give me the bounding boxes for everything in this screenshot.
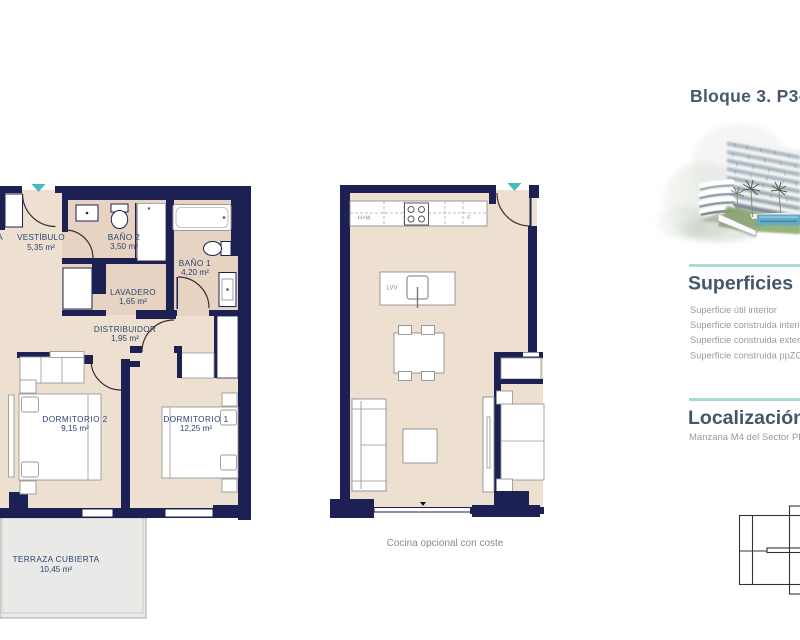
svg-text:F: F (467, 216, 471, 222)
svg-text:VESTÍBULO: VESTÍBULO (17, 232, 65, 242)
svg-text:Manzana M4 del Sector PP: Manzana M4 del Sector PP (689, 432, 800, 443)
svg-text:9,15 m²: 9,15 m² (61, 424, 89, 433)
svg-text:Superficie construida exterior: Superficie construida exterior (690, 335, 800, 345)
svg-text:Localización: Localización (688, 407, 800, 429)
svg-text:TERRAZA CUBIERTA: TERRAZA CUBIERTA (12, 555, 99, 564)
svg-text:Superficie construida interior: Superficie construida interior (690, 320, 800, 330)
svg-text:Superficie construida ppZCC: Superficie construida ppZCC (690, 351, 800, 361)
svg-text:4,20 m²: 4,20 m² (181, 268, 209, 277)
svg-text:Superficies: Superficies (688, 273, 793, 295)
svg-text:Cocina opcional con coste: Cocina opcional con coste (387, 538, 504, 549)
svg-text:BAÑO 2: BAÑO 2 (108, 232, 140, 242)
svg-text:3,50 m²: 3,50 m² (110, 242, 138, 251)
svg-text:BAÑO 1: BAÑO 1 (179, 258, 211, 268)
svg-text:1,65 m²: 1,65 m² (119, 297, 147, 306)
svg-text:DORMITORIO 2: DORMITORIO 2 (42, 415, 107, 424)
svg-text:1,95 m²: 1,95 m² (111, 334, 139, 343)
svg-text:12,25 m²: 12,25 m² (180, 424, 213, 433)
svg-text:DISTRIBUIDOR: DISTRIBUIDOR (94, 325, 156, 334)
svg-text:5,35 m²: 5,35 m² (27, 243, 55, 252)
svg-text:Bloque 3. P3-D: Bloque 3. P3-D (690, 86, 800, 106)
svg-text:Superficie útil interior: Superficie útil interior (690, 305, 777, 315)
svg-text:10,45 m²: 10,45 m² (40, 565, 73, 574)
svg-text:H+M: H+M (358, 216, 371, 222)
svg-text:LAVADERO: LAVADERO (110, 288, 156, 297)
svg-text:LVV: LVV (387, 286, 398, 292)
svg-text:DORMITORIO 1: DORMITORIO 1 (163, 415, 228, 424)
